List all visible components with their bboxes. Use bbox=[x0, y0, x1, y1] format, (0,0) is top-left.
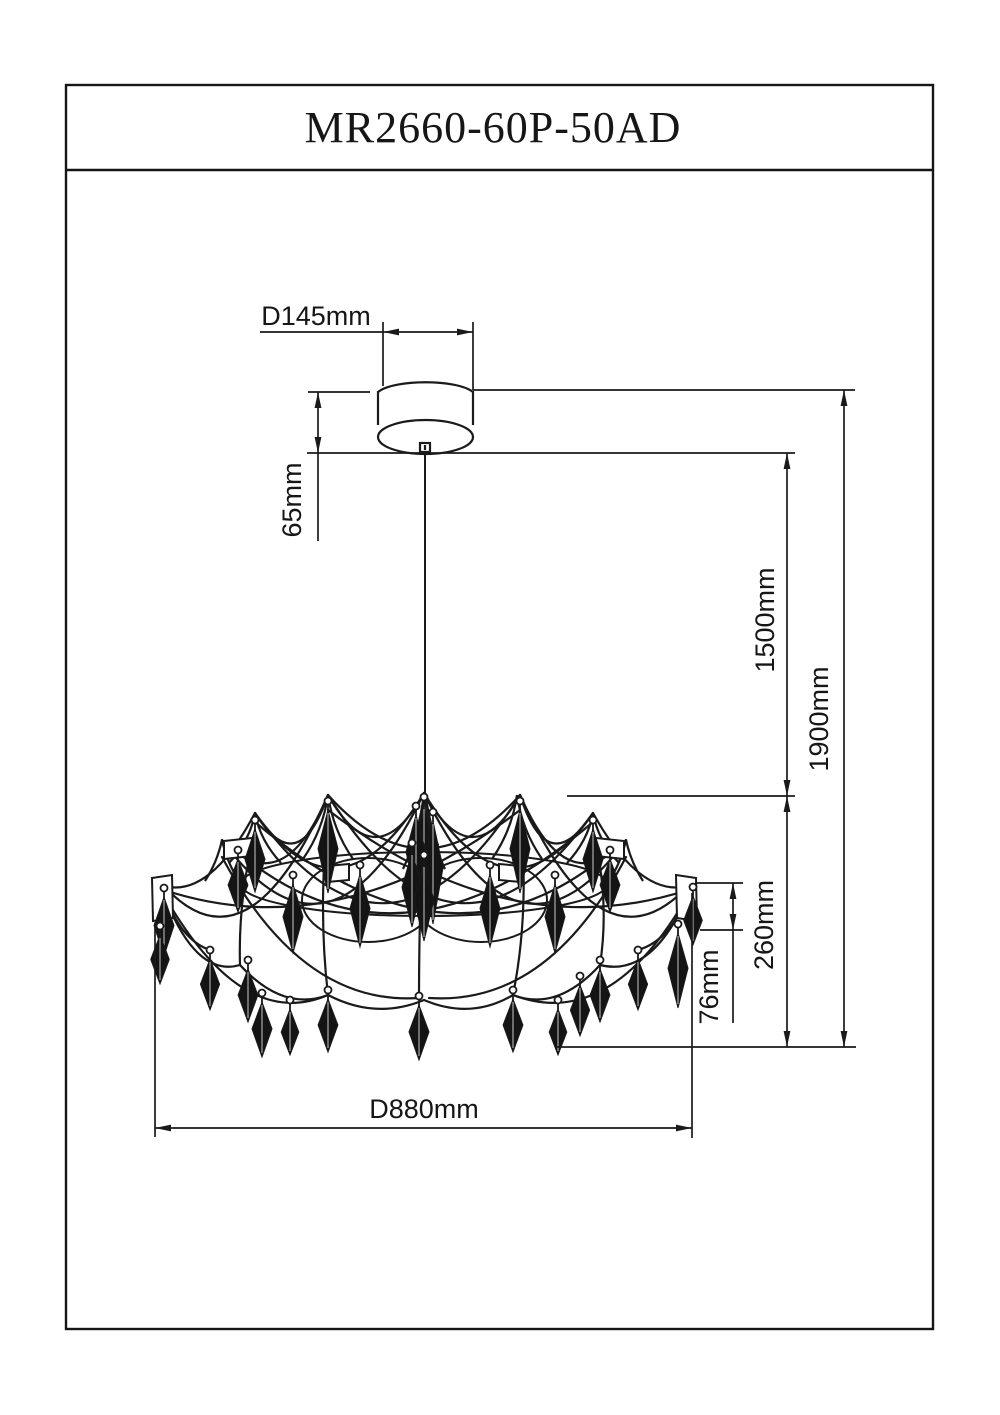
drop-ring bbox=[416, 993, 423, 1000]
peak-leg bbox=[205, 840, 222, 881]
drop-ring bbox=[421, 852, 428, 859]
dimension-arrowhead bbox=[676, 1125, 692, 1132]
swag-wire bbox=[513, 965, 600, 1000]
dimension-arrowhead bbox=[730, 883, 737, 899]
dim-label-overall_height: 1900mm bbox=[804, 666, 834, 771]
dim-label-cable_length: 1500mm bbox=[750, 567, 780, 672]
dim-label-fixture_diameter: D880mm bbox=[369, 1094, 479, 1124]
drop-ring bbox=[252, 817, 259, 824]
drop-ring bbox=[290, 872, 297, 879]
drop-ring bbox=[607, 847, 614, 854]
drop-ring bbox=[409, 840, 416, 847]
drop-ring bbox=[325, 987, 332, 994]
dimension-arrowhead bbox=[315, 437, 322, 453]
dim-label-body_height: 260mm bbox=[749, 880, 779, 970]
canopy bbox=[378, 382, 473, 454]
drop-ring bbox=[325, 798, 332, 805]
drop-ring bbox=[235, 847, 242, 854]
sheet-frame: MR2660-60P-50AD bbox=[66, 85, 933, 1329]
dimension-arrowhead bbox=[383, 329, 399, 336]
drop-ring bbox=[245, 957, 252, 964]
canopy-top-arc bbox=[378, 382, 473, 392]
dimension-arrowhead bbox=[784, 780, 791, 796]
dimension-arrowhead bbox=[784, 453, 791, 469]
drawing-sheet: MR2660-60P-50AD D145mm65mm1500mm1900mm26… bbox=[0, 0, 1000, 1415]
dimension-arrowhead bbox=[784, 1031, 791, 1047]
drop-ring bbox=[421, 794, 428, 801]
drop-ring bbox=[510, 987, 517, 994]
peak-leg bbox=[626, 840, 643, 881]
dimension-arrowhead bbox=[730, 914, 737, 930]
dimension-arrowhead bbox=[315, 392, 322, 408]
chandelier-body bbox=[151, 793, 703, 1060]
drop-ring bbox=[413, 803, 420, 810]
drop-ring bbox=[577, 973, 584, 980]
technical-drawing-canvas: MR2660-60P-50AD D145mm65mm1500mm1900mm26… bbox=[0, 0, 1000, 1415]
dimension-arrowhead bbox=[841, 1031, 848, 1047]
drop-ring bbox=[287, 997, 294, 1004]
drop-ring bbox=[590, 817, 597, 824]
dim-label-canopy_diameter: D145mm bbox=[261, 301, 371, 331]
drop-ring bbox=[487, 862, 494, 869]
drop-ring bbox=[157, 923, 164, 930]
dim-label-crystal_drop_length: 76mm bbox=[694, 949, 724, 1024]
drop-ring bbox=[207, 947, 214, 954]
dim-label-canopy_height: 65mm bbox=[277, 462, 307, 537]
drop-ring bbox=[259, 990, 266, 997]
drop-ring bbox=[161, 885, 168, 892]
drop-ring bbox=[690, 884, 697, 891]
model-number-title: MR2660-60P-50AD bbox=[305, 103, 682, 152]
drop-ring bbox=[552, 872, 559, 879]
swag-wire bbox=[328, 995, 424, 1009]
drop-ring bbox=[357, 862, 364, 869]
dimension-arrowhead bbox=[155, 1125, 171, 1132]
dimension-arrowhead bbox=[457, 329, 473, 336]
drop-ring bbox=[635, 947, 642, 954]
dimension-arrowhead bbox=[784, 796, 791, 812]
drop-ring bbox=[517, 798, 524, 805]
drop-ring bbox=[597, 957, 604, 964]
drop-ring bbox=[555, 997, 562, 1004]
drop-ring bbox=[430, 809, 437, 816]
dimension-arrowhead bbox=[841, 390, 848, 406]
border-frame bbox=[66, 85, 933, 1329]
drop-ring bbox=[675, 921, 682, 928]
